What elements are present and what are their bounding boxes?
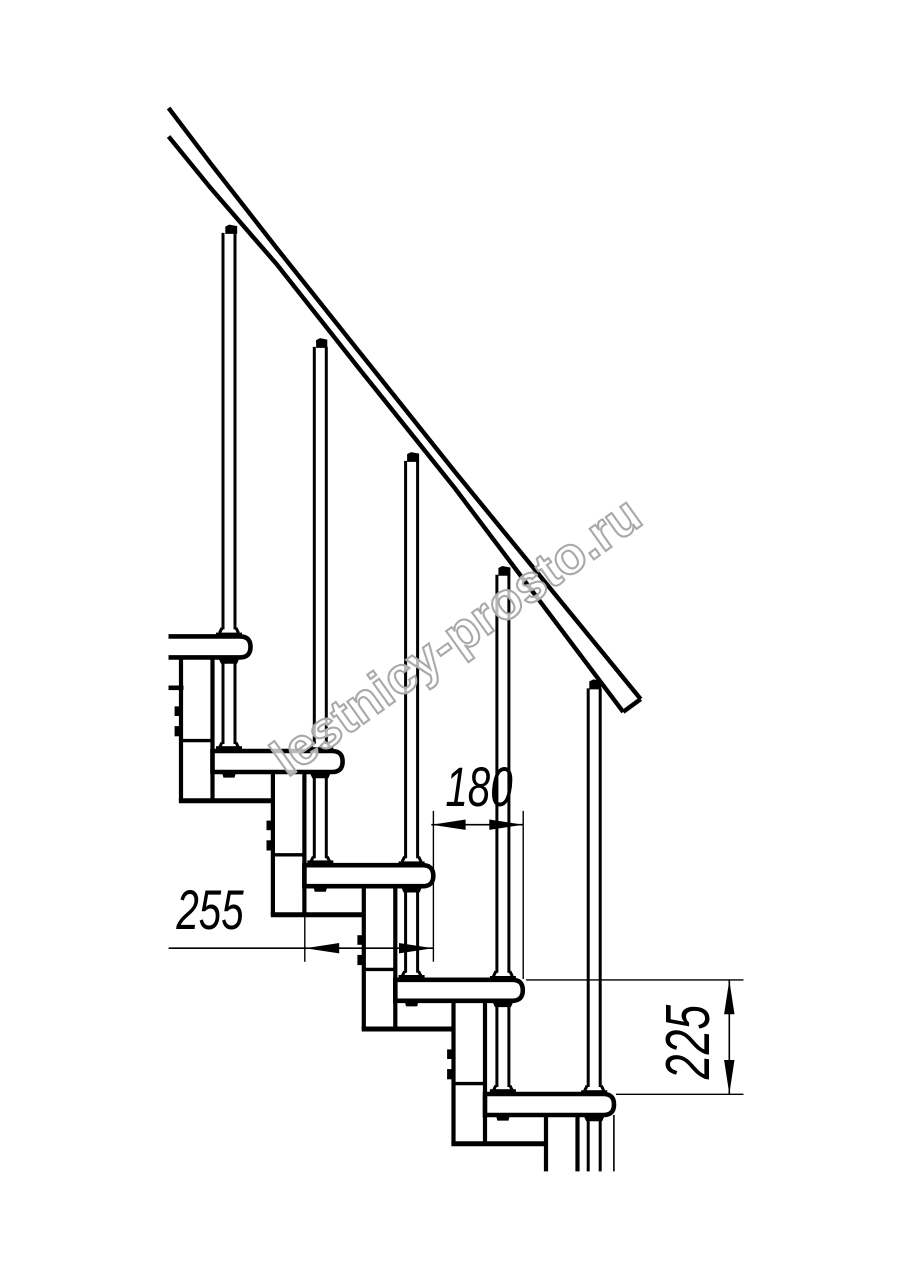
svg-text:180: 180	[445, 757, 512, 819]
svg-text:225: 225	[654, 1004, 723, 1080]
svg-text:255: 255	[176, 880, 245, 942]
